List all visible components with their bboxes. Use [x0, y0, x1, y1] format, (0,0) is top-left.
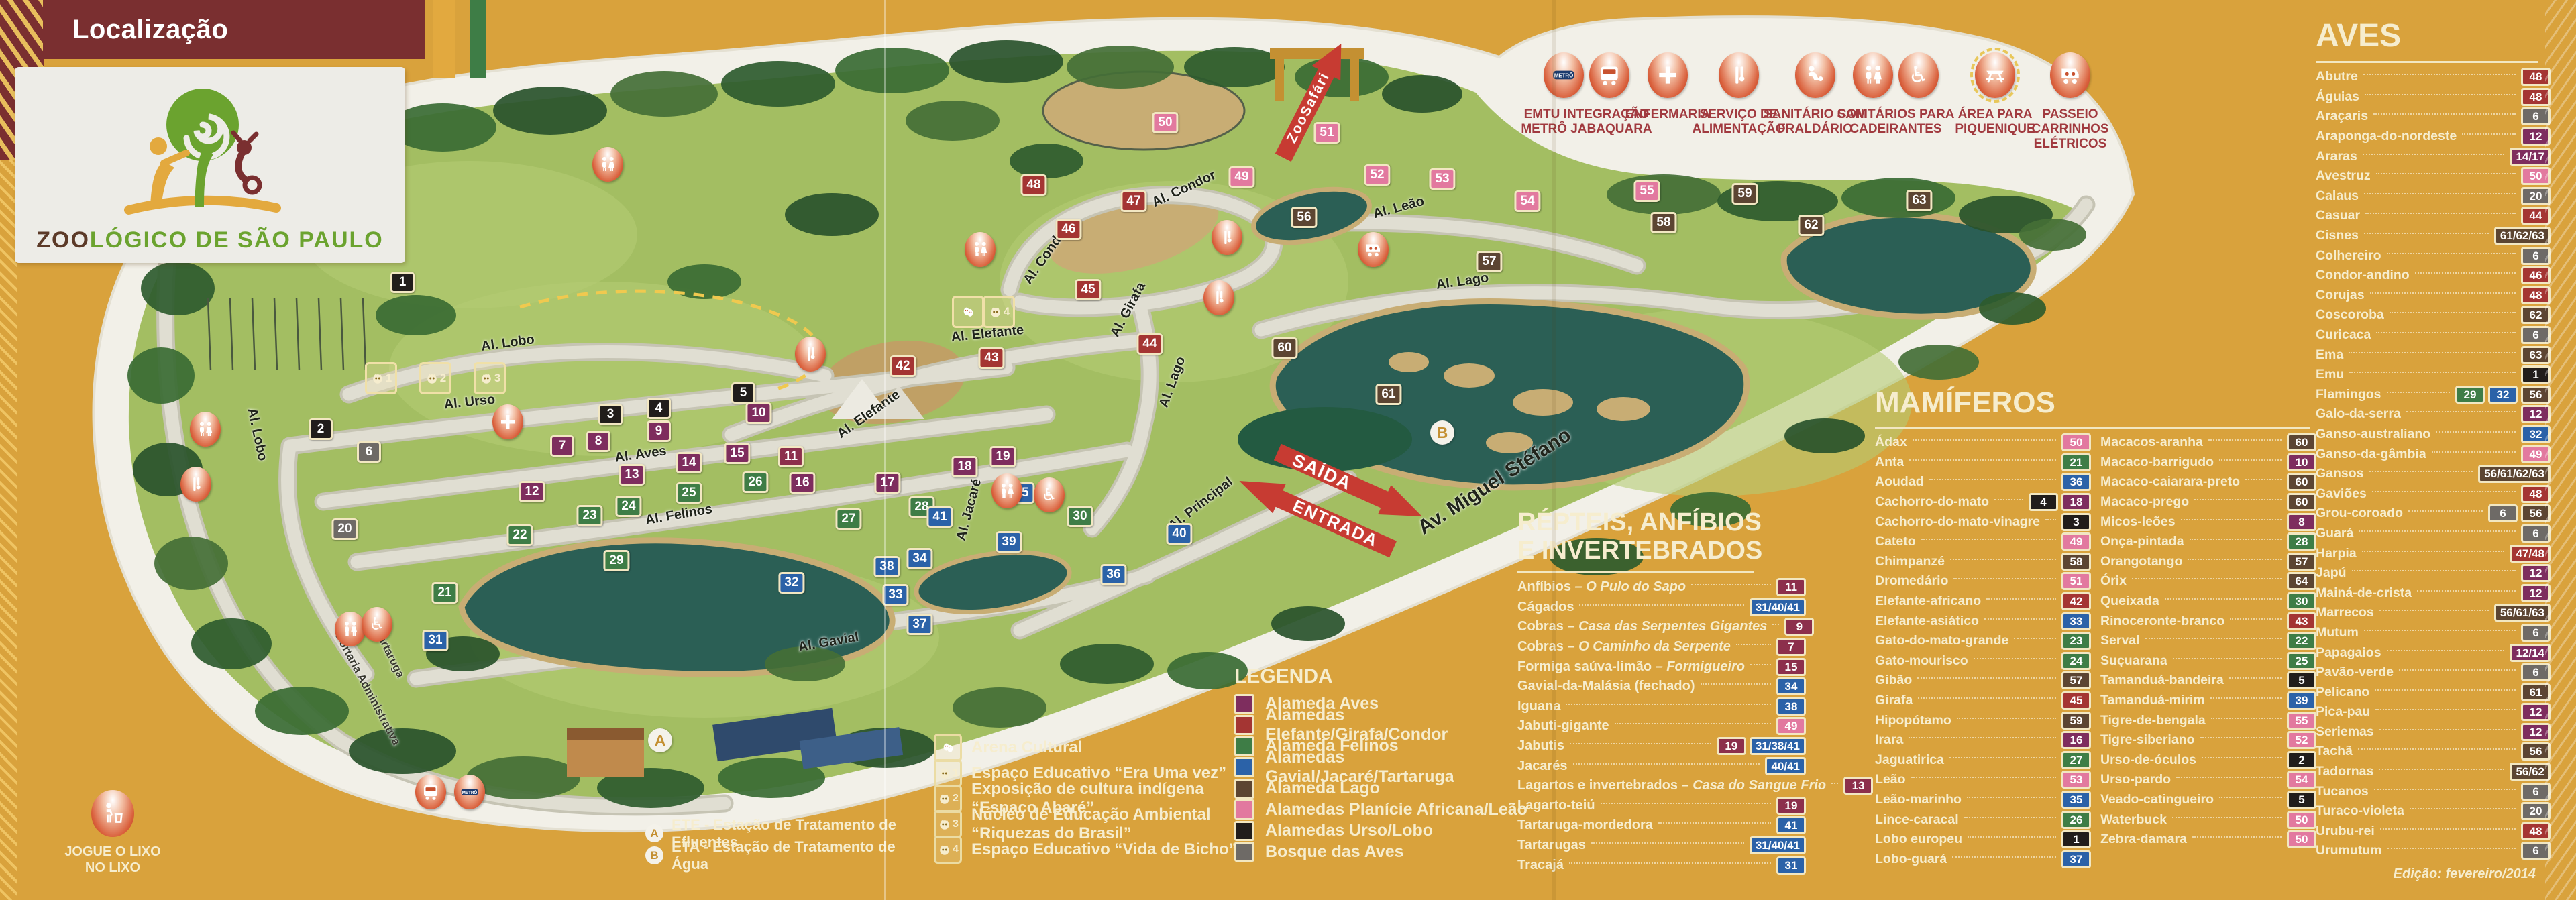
entrada-sign: ENTRADA [1233, 466, 1400, 564]
list-item: Turaco-violeta20 [2316, 801, 2551, 822]
repteis-list-panel: RÉPTEIS, ANFÍBIOS E INVERTEBRADOS Anfíbi… [1517, 508, 1806, 875]
area-chip: 56/62 [2510, 763, 2551, 781]
area-chip: 19 [1776, 797, 1806, 815]
zoo-logo-panel: ZOOLÓGICO DE SÃO PAULO [15, 67, 405, 263]
street-label: Al. Aves [614, 443, 667, 466]
logo-rest: LÓGICO DE SÃO PAULO [90, 227, 384, 253]
mamiferos-col1: Ádax50Anta21Aoudad36Cachorro-do-mato418C… [1875, 433, 2091, 869]
list-item: Araponga-do-nordeste12 [2316, 127, 2551, 147]
area-chip: 58 [2061, 553, 2091, 571]
street-label: Al. Girafa [1108, 280, 1149, 339]
area-chip: 27 [2061, 751, 2091, 769]
svg-text:METRÔ: METRÔ [462, 790, 478, 795]
street-label: Al. Lobo [480, 332, 535, 355]
station-letter-badge: B [645, 846, 663, 864]
legenda-items: Alameda AvesAlamedas Elefante/Girafa/Con… [1234, 693, 1529, 862]
education-space-icon-4: 4 [983, 296, 1015, 328]
list-item: Órix64 [2100, 571, 2316, 592]
map-marker-32: 32 [778, 572, 804, 594]
legenda-title: LEGENDA [1234, 665, 1529, 688]
area-chip: 51 [2061, 572, 2091, 590]
map-marker-55: 55 [1633, 180, 1660, 202]
zoo-map-brochure: { "header": {"title": "Localização"}, "l… [0, 0, 2576, 900]
list-item: Urumutum6 [2316, 841, 2551, 861]
area-chip: 9 [1784, 618, 1814, 636]
area-chip: 21 [2061, 453, 2091, 471]
food-icon [1212, 220, 1242, 255]
list-item: Macaco-caiarara-preto60 [2100, 472, 2316, 492]
area-chip: 50 [2287, 811, 2316, 829]
list-item: Leão53 [1875, 770, 2091, 790]
area-chip: 42 [2061, 592, 2091, 610]
owl-icon: 4 [934, 836, 962, 864]
list-item: Chimpanzé58 [1875, 552, 2091, 572]
list-item: Guará6 [2316, 524, 2551, 544]
area-chip: 1 [2061, 830, 2091, 848]
map-marker-47: 47 [1120, 190, 1146, 212]
education-space-icon-2: 2 [419, 362, 451, 394]
list-item: Curicaca6 [2316, 325, 2551, 345]
area-chip: 12/14 [2510, 644, 2551, 662]
list-item: Jabuti-gigante49 [1517, 716, 1806, 736]
list-item: Gavial-da-Malásia (fechado)34 [1517, 677, 1806, 697]
list-item: Waterbuck50 [2100, 809, 2316, 830]
street-label: Al. Lobo [244, 406, 270, 462]
area-chip: 37 [2061, 850, 2091, 868]
list-item: Corujas48 [2316, 286, 2551, 306]
list-item: Grou-coroado656 [2316, 504, 2551, 524]
map-marker-52: 52 [1364, 164, 1390, 186]
area-chip: 5 [2287, 791, 2316, 809]
wheelchair-icon: ♿ [362, 607, 392, 642]
map-marker-42: 42 [890, 355, 916, 377]
aves-title: AVES [2316, 17, 2551, 54]
map-marker-18: 18 [951, 456, 977, 477]
map-marker-8: 8 [586, 431, 610, 452]
legenda-panel: LEGENDA Alameda AvesAlamedas Elefante/Gi… [1234, 665, 1529, 862]
list-item: Avestruz50 [2316, 166, 2551, 186]
list-item: Emu1 [2316, 365, 2551, 385]
list-item: Tartarugas31/40/41 [1517, 836, 1806, 856]
education-space-icon-3: 3 [474, 362, 506, 394]
area-chip: 26 [2061, 811, 2091, 829]
list-item: Lobo europeu1 [1875, 830, 2091, 850]
list-item: Leão-marinho35 [1875, 790, 2091, 810]
list-item: Jaguatirica27 [1875, 750, 2091, 771]
map-marker-48: 48 [1020, 174, 1046, 196]
legend-item: Alamedas Planície Africana/Leão [1234, 799, 1529, 821]
list-item: Ganso-australiano32 [2316, 425, 2551, 445]
map-marker-27: 27 [835, 508, 861, 530]
aves-list-panel: AVES Abutre48Águias48Araçaris6Araponga-d… [2316, 17, 2551, 861]
list-item: Macaco-barrigudo10 [2100, 453, 2316, 473]
map-marker-9: 9 [647, 420, 671, 442]
zoosafari-sign: ZooSafári [1269, 36, 1355, 165]
area-chip: 3 [2061, 513, 2091, 531]
area-chip: 31/40/41 [1750, 836, 1806, 854]
map-marker-63: 63 [1906, 190, 1932, 211]
street-label: Al. Lago [1435, 270, 1489, 293]
map-marker-39: 39 [996, 531, 1022, 553]
list-item: Elefante-asiático33 [1875, 611, 2091, 631]
aves-rule [2316, 61, 2538, 63]
list-item: Tracajá31 [1517, 855, 1806, 875]
area-chip: 57 [2287, 553, 2316, 571]
map-marker-13: 13 [619, 464, 645, 486]
area-chip: 38 [1776, 697, 1806, 716]
station-letter-badge: A [645, 824, 663, 842]
list-item: Ganso-da-gâmbia49 [2316, 444, 2551, 464]
area-chip: 14/17 [2510, 148, 2551, 166]
facilities-legend: Arena Cultural1Espaço Educativo “Era Uma… [934, 735, 1242, 862]
list-item: Girafa45 [1875, 691, 2091, 711]
list-item: Macacos-aranha60 [2100, 433, 2316, 453]
list-item: Marrecos56/61/63 [2316, 603, 2551, 623]
area-chip: 43 [2287, 612, 2316, 630]
list-item: Pavão-verde6 [2316, 663, 2551, 683]
area-chip: 24 [2061, 652, 2091, 670]
list-item: Ema63 [2316, 345, 2551, 365]
map-marker-53: 53 [1429, 168, 1455, 190]
list-item: Cobras – O Caminho da Serpente7 [1517, 637, 1806, 657]
header-band: Localização [43, 0, 425, 59]
area-chip: 59 [2061, 712, 2091, 730]
area-chip: 11 [1776, 578, 1806, 596]
list-item: Veado-catingueiro5 [2100, 790, 2316, 810]
cross-icon [492, 404, 523, 439]
map-marker-61: 61 [1375, 384, 1401, 405]
area-chip: 56/61/62/63 [2478, 465, 2551, 483]
map-marker-16: 16 [789, 472, 815, 494]
list-item: Tachã56 [2316, 742, 2551, 762]
legend-item: Bosque das Aves [1234, 842, 1529, 863]
map-marker-46: 46 [1055, 219, 1081, 240]
trash-icon [91, 790, 134, 837]
list-item: Lagartos e invertebrados – Casa do Sangu… [1517, 776, 1806, 796]
area-chip: 60 [2287, 433, 2316, 451]
area-chip: 5 [2287, 671, 2316, 689]
map-marker-45: 45 [1075, 279, 1101, 300]
list-item: Coscoroba62 [2316, 305, 2551, 325]
list-item: Mutum6 [2316, 623, 2551, 643]
area-chip: 60 [2287, 493, 2316, 511]
area-chip: 8 [2287, 513, 2316, 531]
service-label: PASSEIOCARRINHOSELÉTRICOS [2000, 107, 2141, 152]
legend-color-swatch [1234, 694, 1254, 714]
street-label: Al. Lago [1157, 355, 1189, 410]
area-chip: 15 [1776, 658, 1806, 676]
list-item: Gibão57 [1875, 671, 2091, 691]
map-marker-5: 5 [731, 382, 755, 404]
area-chip: 57 [2061, 671, 2091, 689]
list-item: Cachorro-do-mato-vinagre3 [1875, 512, 2091, 532]
list-item: Tamanduá-bandeira5 [2100, 671, 2316, 691]
list-item: Mainá-de-crista12 [2316, 583, 2551, 603]
legend-item: Alamedas Gavial/Jacaré/Tartaruga [1234, 757, 1529, 779]
area-chip: 39 [2287, 691, 2316, 710]
area-chip: 54 [2287, 771, 2316, 789]
service-item: PASSEIOCARRINHOSELÉTRICOS [2000, 52, 2141, 152]
area-chip: 55 [2287, 712, 2316, 730]
map-marker-15: 15 [724, 443, 750, 464]
facility-item: Arena Cultural [934, 735, 1242, 761]
map-marker-56: 56 [1291, 207, 1317, 228]
map-marker-49: 49 [1228, 166, 1254, 188]
map-marker-36: 36 [1100, 564, 1126, 585]
area-chip: 53 [2061, 771, 2091, 789]
map-marker-10: 10 [745, 402, 771, 424]
list-item: Micos-leões8 [2100, 512, 2316, 532]
page-title: Localização [43, 15, 228, 45]
area-chip: 33 [2061, 612, 2091, 630]
map-marker-26: 26 [742, 471, 768, 493]
map-marker-21: 21 [431, 582, 458, 604]
street-label: Al. Leão [1371, 194, 1426, 222]
cart-icon [1358, 232, 1389, 267]
map-marker-19: 19 [989, 446, 1016, 467]
map-marker-20: 20 [331, 518, 358, 540]
area-chip: 31/40/41 [1750, 598, 1806, 616]
map-marker-43: 43 [978, 347, 1004, 369]
list-item: Jacarés40/41 [1517, 756, 1806, 776]
list-item: Casuar44 [2316, 206, 2551, 226]
map-marker-23: 23 [576, 505, 602, 526]
owl-icon: 2 [934, 785, 962, 813]
list-item: Cachorro-do-mato418 [1875, 492, 2091, 512]
list-item: Suçuarana25 [2100, 651, 2316, 671]
area-chip: 22 [2287, 632, 2316, 650]
list-item: Ádax50 [1875, 433, 2091, 453]
list-item: Lagarto-teiú19 [1517, 796, 1806, 816]
list-item: Jabutis1931/38/41 [1517, 736, 1806, 756]
area-chip: 45 [2061, 691, 2091, 710]
list-item: Condor-andino46 [2316, 266, 2551, 286]
area-chip: 32 [2488, 386, 2518, 404]
list-item: Macaco-prego60 [2100, 492, 2316, 512]
mamiferos-list-panel: MAMÍFEROS Ádax50Anta21Aoudad36Cachorro-d… [1875, 386, 2318, 869]
street-label: Al. Jacaré [954, 477, 985, 542]
area-chip: 6 [2488, 504, 2518, 522]
aves-rows: Abutre48Águias48Araçaris6Araponga-do-nor… [2316, 67, 2551, 861]
map-marker-25: 25 [676, 482, 702, 504]
list-item: Harpia47/48 [2316, 543, 2551, 563]
map-marker-4: 4 [647, 398, 671, 419]
list-item: Cágados31/40/41 [1517, 598, 1806, 618]
repteis-title: RÉPTEIS, ANFÍBIOS E INVERTEBRADOS [1517, 508, 1806, 565]
arena-cultural-icon [952, 296, 984, 328]
map-marker-44: 44 [1136, 333, 1163, 355]
wc-icon [965, 232, 996, 267]
list-item: Pica-pau12 [2316, 702, 2551, 722]
map-marker-30: 30 [1067, 506, 1093, 527]
area-chip: 40/41 [1765, 757, 1806, 775]
wheelchair-icon: ♿ [1034, 477, 1065, 512]
map-marker-38: 38 [873, 556, 900, 577]
map-marker-31: 31 [422, 630, 448, 651]
list-item: Tartaruga-mordedora41 [1517, 815, 1806, 836]
area-chip: 49 [2061, 532, 2091, 551]
decor-stripe-green [470, 0, 486, 78]
trash-note-text: JOGUE O LIXONO LIXO [59, 844, 166, 876]
map-marker-34: 34 [906, 548, 932, 569]
list-item: Onça-pintada28 [2100, 532, 2316, 552]
area-chip: 60 [2287, 473, 2316, 491]
area-chip: 41 [1776, 816, 1806, 834]
right-edge-hatching [2545, 0, 2576, 900]
list-item: Araras14/17 [2316, 146, 2551, 166]
area-chip: 18 [2061, 493, 2091, 511]
zoo-logo-text: ZOOLÓGICO DE SÃO PAULO [15, 227, 405, 254]
list-item: Abutre48 [2316, 67, 2551, 87]
list-item: Cobras – Casa das Serpentes Gigantes9 [1517, 617, 1806, 637]
list-item: Aoudad36 [1875, 472, 2091, 492]
list-item: Rinoceronte-branco43 [2100, 611, 2316, 631]
area-chip: 16 [2061, 731, 2091, 749]
list-item: Águias48 [2316, 87, 2551, 107]
list-item: Dromedário51 [1875, 571, 2091, 592]
map-marker-41: 41 [926, 506, 953, 528]
cart-icon [2050, 52, 2090, 98]
map-marker-62: 62 [1798, 215, 1824, 236]
area-chip: 47/48 [2510, 545, 2551, 563]
map-marker-22: 22 [506, 524, 533, 546]
station-letter-B: B [1430, 420, 1454, 445]
map-marker-57: 57 [1476, 251, 1502, 272]
masks-icon [934, 734, 962, 762]
list-item: Lobo-guará37 [1875, 849, 2091, 869]
metro-icon: METRÔ [454, 775, 485, 809]
map-marker-54: 54 [1514, 190, 1540, 212]
map-marker-29: 29 [603, 550, 629, 571]
education-space-icon-1: 1 [365, 362, 397, 394]
area-chip: 30 [2287, 592, 2316, 610]
list-item: Flamingos293256 [2316, 385, 2551, 405]
street-label: Al. Urso [443, 392, 496, 413]
fold-crease [884, 0, 886, 900]
legend-item: Alamedas Elefante/Girafa/Condor [1234, 715, 1529, 736]
street-label: Al. Gavial [797, 630, 860, 655]
map-marker-58: 58 [1650, 212, 1676, 233]
bus-icon [415, 775, 446, 809]
wc-icon [1853, 52, 1893, 98]
area-chip: 29 [2455, 386, 2485, 404]
area-chip: 36 [2061, 473, 2091, 491]
map-marker-24: 24 [615, 496, 641, 517]
list-item: Cateto49 [1875, 532, 2091, 552]
map-marker-51: 51 [1313, 122, 1340, 144]
area-chip: 35 [2061, 791, 2091, 809]
map-marker-7: 7 [550, 435, 574, 457]
area-chip: 31/38/41 [1750, 737, 1806, 755]
map-marker-1: 1 [390, 272, 415, 293]
list-item: Urso-de-óculos2 [2100, 750, 2316, 771]
area-chip: 56/61/63 [2494, 604, 2551, 622]
list-item: Lince-caracal26 [1875, 809, 2091, 830]
zoo-logo-icon [89, 72, 317, 220]
list-item: Queixada30 [2100, 592, 2316, 612]
list-item: Calaus20 [2316, 186, 2551, 207]
list-item: Tigre-de-bengala55 [2100, 710, 2316, 730]
area-chip: 10 [2287, 453, 2316, 471]
facility-item: 4Espaço Educativo “Vida de Bicho” [934, 837, 1242, 862]
map-marker-33: 33 [882, 584, 908, 606]
legend-color-swatch [1234, 715, 1254, 735]
list-item: Tigre-siberiano52 [2100, 730, 2316, 750]
list-item: Hipopótamo59 [1875, 710, 2091, 730]
edition-note: Edição: fevereiro/2014 [2334, 866, 2536, 882]
list-item: Galo-da-serra12 [2316, 404, 2551, 425]
list-item: Pelicano61 [2316, 682, 2551, 702]
wc-icon [991, 473, 1022, 508]
svg-text:METRÔ: METRÔ [1554, 72, 1574, 78]
area-chip: 34 [1776, 677, 1806, 695]
list-item: Orangotango57 [2100, 552, 2316, 572]
facility-item: 3Núcleo de Educação Ambiental “Riquezas … [934, 811, 1242, 837]
owl-icon: 1 [934, 759, 962, 787]
wc-icon [190, 412, 221, 447]
list-item: Elefante-africano42 [1875, 592, 2091, 612]
map-marker-37: 37 [906, 614, 932, 635]
area-chip: 2 [2287, 751, 2316, 769]
metro-icon: METRÔ [1544, 52, 1584, 98]
list-item: Irara16 [1875, 730, 2091, 750]
list-item: Tamanduá-mirim39 [2100, 691, 2316, 711]
trash-note: JOGUE O LIXONO LIXO [59, 790, 166, 876]
fold-crease [1552, 0, 1556, 900]
map-marker-40: 40 [1166, 523, 1192, 545]
area-chip: 31 [1776, 856, 1806, 875]
list-item: Zebra-damara50 [2100, 830, 2316, 850]
area-chip: 4 [2029, 493, 2058, 511]
map-marker-11: 11 [778, 446, 804, 467]
list-item: Gato-mourisco24 [1875, 651, 2091, 671]
list-item: Gansos56/61/62/63 [2316, 464, 2551, 484]
street-label: Al. Elefante [835, 387, 903, 441]
map-marker-3: 3 [598, 404, 623, 425]
list-item: Urso-pardo54 [2100, 770, 2316, 790]
area-chip: 52 [2287, 731, 2316, 749]
area-chip: 50 [2061, 433, 2091, 451]
area-chip: 50 [2287, 830, 2316, 848]
list-item: Gato-do-mato-grande23 [1875, 631, 2091, 651]
list-item: Colhereiro6 [2316, 245, 2551, 266]
list-item: Anfíbios – O Pulo do Sapo11 [1517, 577, 1806, 598]
decor-stripe-yellow [433, 0, 455, 78]
food-icon [795, 337, 826, 372]
map-marker-60: 60 [1271, 337, 1297, 359]
map-marker-6: 6 [357, 441, 381, 463]
list-item: Serval22 [2100, 631, 2316, 651]
area-chip: 61/62/63 [2494, 227, 2551, 245]
list-item: Iguana38 [1517, 697, 1806, 717]
area-chip: 25 [2287, 652, 2316, 670]
saida-sign: SAÍDA [1271, 437, 1428, 531]
map-marker-12: 12 [519, 481, 545, 502]
area-chip: 64 [2287, 572, 2316, 590]
area-chip: 23 [2061, 632, 2091, 650]
list-item: Araçaris6 [2316, 107, 2551, 127]
list-item: Seriemas12 [2316, 722, 2551, 742]
logo-zoo: ZOO [36, 227, 90, 253]
area-chip: 49 [1776, 717, 1806, 735]
list-item: Tucanos6 [2316, 781, 2551, 801]
list-item: Tadornas56/62 [2316, 762, 2551, 782]
list-item: Japú12 [2316, 563, 2551, 583]
repteis-rows: Anfíbios – O Pulo do Sapo11Cágados31/40/… [1517, 577, 1806, 875]
list-item: Gaviões48 [2316, 484, 2551, 504]
area-chip: 13 [1843, 777, 1873, 795]
list-item: Urubu-rei48 [2316, 822, 2551, 842]
